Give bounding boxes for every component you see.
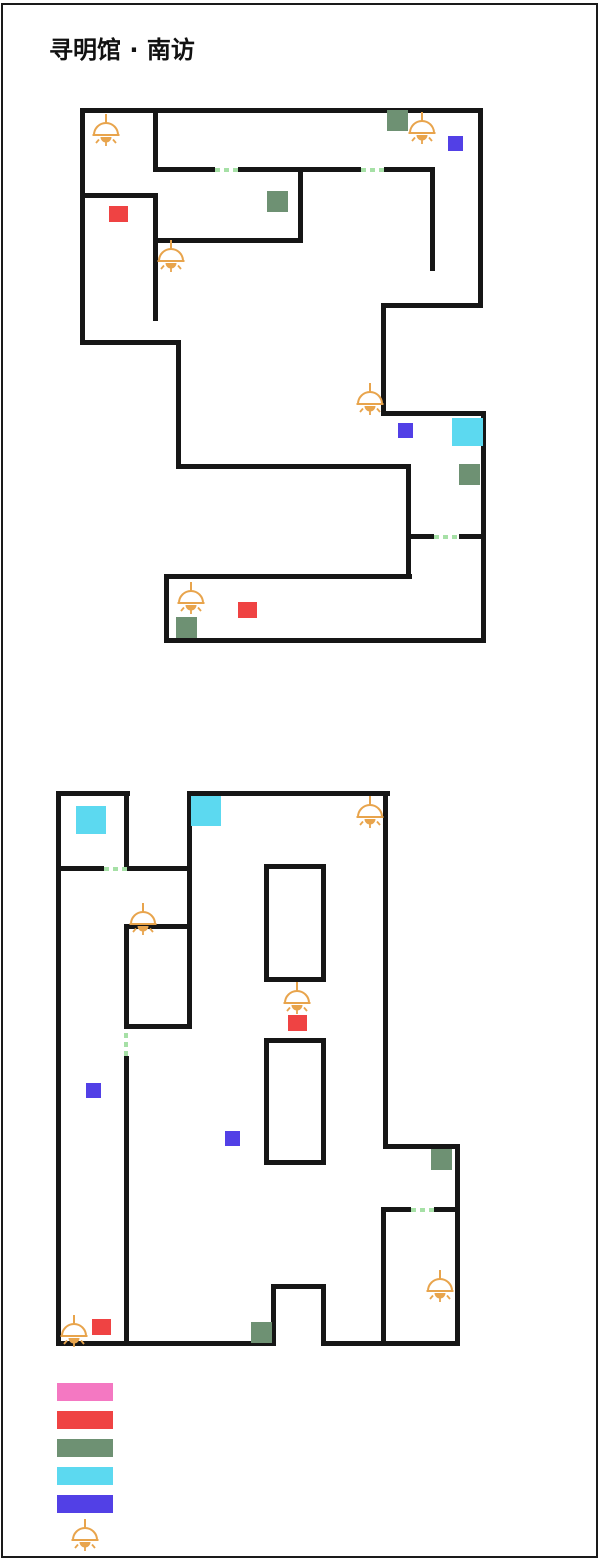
map-wall <box>176 340 181 469</box>
pouch-marker <box>452 418 483 446</box>
map-wall <box>80 108 85 345</box>
map-wall <box>127 866 191 871</box>
guide-image: 寻明馆 · 南访 <box>0 0 600 1565</box>
map-wall <box>124 791 129 871</box>
map-wall <box>124 1056 129 1346</box>
switch-A <box>387 110 408 131</box>
lamp-icon <box>175 580 207 620</box>
door-dash-C <box>361 168 384 172</box>
map-wall <box>381 1207 386 1346</box>
switch-D <box>251 1322 272 1343</box>
dialog-marker <box>448 136 463 151</box>
map-wall <box>383 303 483 308</box>
lamp-icon <box>281 980 313 1020</box>
map-wall <box>153 108 158 172</box>
lamp-icon <box>58 1313 90 1353</box>
switch-E <box>459 464 480 485</box>
map-wall <box>156 167 215 172</box>
map-wall <box>408 534 434 539</box>
legend-swatch-5 <box>57 1495 113 1513</box>
lamp-icon <box>155 238 187 278</box>
map-wall <box>56 866 104 871</box>
lamp-icon <box>354 381 386 421</box>
legend-swatch-2 <box>57 1411 113 1429</box>
pouch-marker <box>76 806 106 834</box>
map-wall <box>56 791 130 796</box>
map-wall <box>166 574 412 579</box>
map-wall <box>164 574 169 643</box>
map-wall <box>383 791 388 1149</box>
map-wall <box>384 167 435 172</box>
map-wall <box>478 108 483 308</box>
map-wall <box>455 1144 460 1346</box>
lamp-icon <box>354 794 386 834</box>
map-wall <box>298 167 303 243</box>
pouch-marker <box>191 796 221 826</box>
map-wall <box>178 464 410 469</box>
map-wall <box>273 1284 326 1289</box>
legend-swatch-3 <box>57 1439 113 1457</box>
map-wall <box>430 167 435 271</box>
door-dash-A <box>411 1208 434 1212</box>
map-inner-room <box>264 864 326 982</box>
lamp-icon <box>127 901 159 941</box>
lamp-icon <box>69 1517 101 1557</box>
map-inner-room <box>264 1038 326 1165</box>
map-wall <box>321 1284 326 1346</box>
switch-C <box>431 1149 452 1170</box>
legend-swatch-1 <box>57 1383 113 1401</box>
legend-swatch-4 <box>57 1467 113 1485</box>
dialog-marker <box>86 1083 101 1098</box>
lamp-icon <box>90 112 122 152</box>
door-dash-B <box>215 168 238 172</box>
map-wall <box>80 340 180 345</box>
dialog-marker <box>398 423 413 438</box>
note-marker <box>92 1319 111 1335</box>
switch-B <box>267 191 288 212</box>
switch-F <box>176 617 197 638</box>
door-dash-F <box>104 867 127 871</box>
dialog-marker <box>225 1131 240 1146</box>
lamp-icon <box>406 110 438 150</box>
map-wall <box>406 464 411 579</box>
map-wall <box>56 791 61 1346</box>
map-wall <box>383 411 486 416</box>
map-wall <box>324 1341 460 1346</box>
door-dash-D <box>434 535 459 539</box>
map-wall <box>166 638 486 643</box>
lamp-icon <box>424 1268 456 1308</box>
note-marker <box>109 206 128 222</box>
map-wall <box>80 193 158 198</box>
page-title: 寻明馆 · 南访 <box>49 30 195 65</box>
note-marker <box>238 602 257 618</box>
door-dash-E <box>124 1029 128 1056</box>
